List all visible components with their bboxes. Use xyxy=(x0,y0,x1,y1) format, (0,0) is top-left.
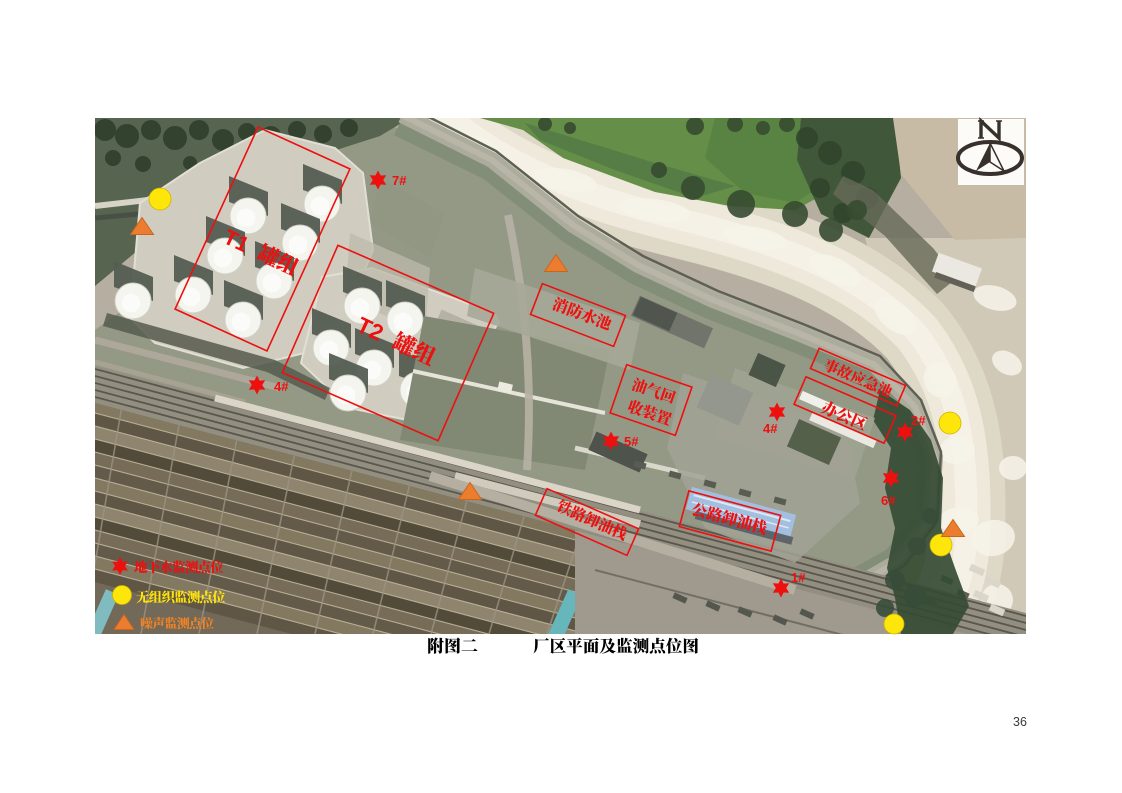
svg-text:4#: 4# xyxy=(763,421,778,436)
svg-text:2#: 2# xyxy=(911,413,926,428)
svg-text:6#: 6# xyxy=(881,493,896,508)
svg-text:4#: 4# xyxy=(274,379,289,394)
svg-text:7#: 7# xyxy=(392,173,407,188)
svg-text:1#: 1# xyxy=(791,570,806,585)
svg-text:5#: 5# xyxy=(624,434,639,449)
svg-text:36: 36 xyxy=(1013,715,1027,729)
